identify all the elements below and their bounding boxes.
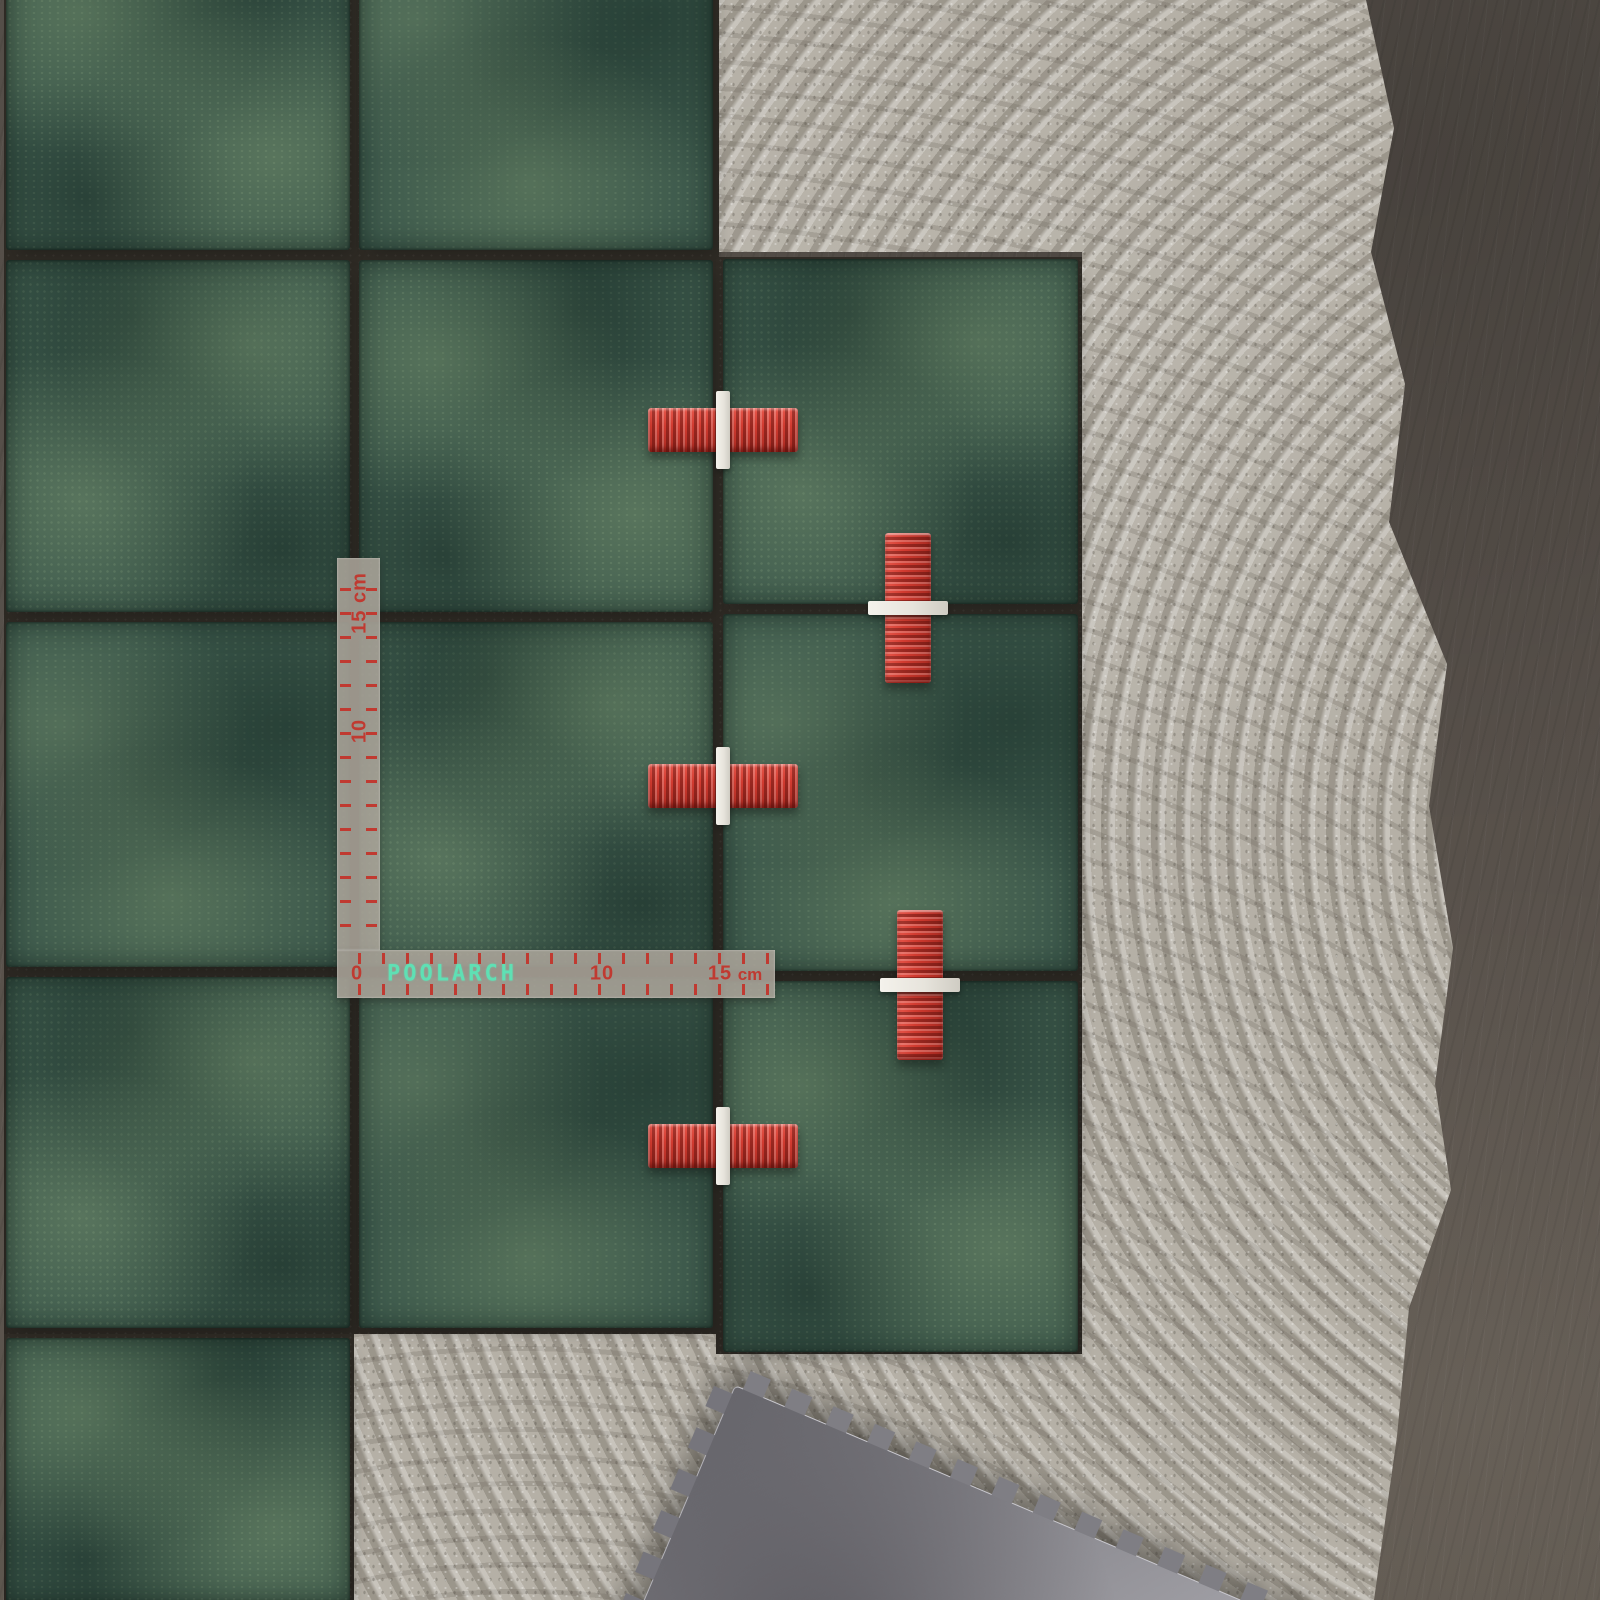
spacer-clip xyxy=(868,601,948,615)
ceramic-tile xyxy=(359,0,713,250)
ruler-brand-label: POOLARCH xyxy=(387,962,517,987)
ruler-scale-label: 15 cm xyxy=(349,572,372,634)
ceramic-tile xyxy=(6,977,350,1328)
spacer-clip xyxy=(716,747,730,825)
ceramic-tile xyxy=(6,260,350,612)
ruler-scale-label: cm xyxy=(738,965,763,985)
scene: 0POOLARCH1015cm15 cm10 xyxy=(0,0,1600,1600)
ceramic-tile xyxy=(6,1338,350,1600)
ceramic-tile xyxy=(6,622,350,967)
ruler-scale-label: 0 xyxy=(351,963,363,986)
spacer-clip xyxy=(716,391,730,469)
spacer-clip xyxy=(880,978,960,992)
ruler-scale-label: 10 xyxy=(349,719,372,743)
ruler-scale-label: 15 xyxy=(708,963,732,986)
ruler-scale-label: 10 xyxy=(590,963,614,986)
spacer-clip xyxy=(716,1107,730,1185)
ceramic-tile xyxy=(6,0,350,250)
